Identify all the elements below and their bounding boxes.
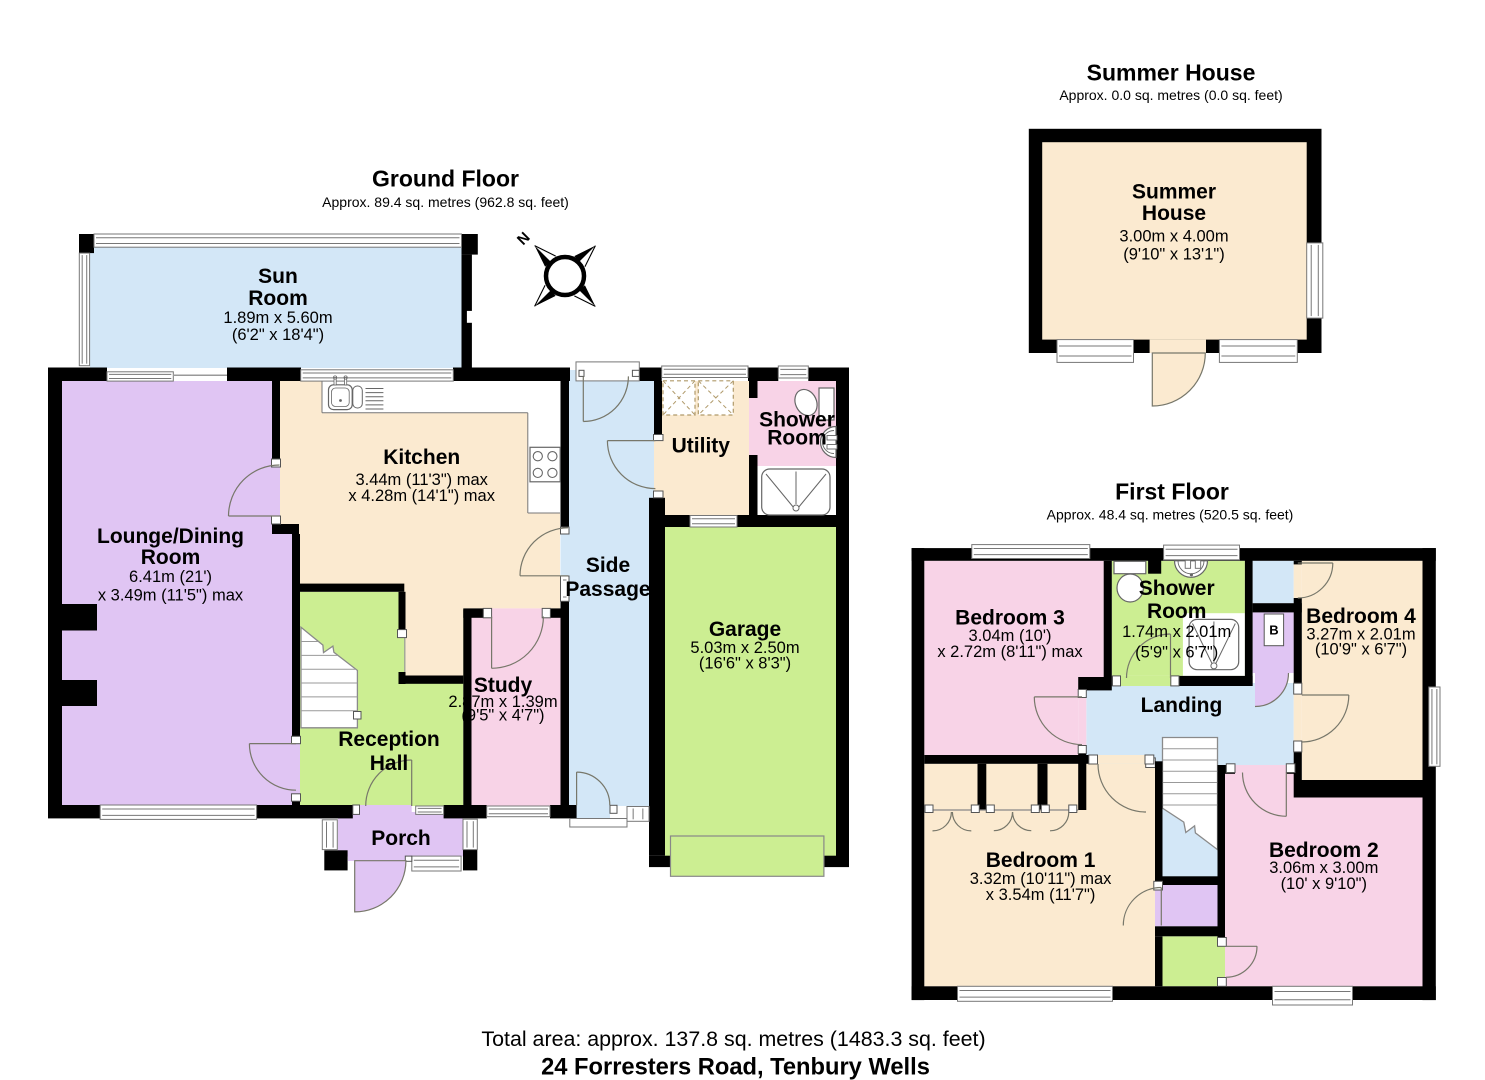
svg-text:Reception: Reception — [338, 728, 440, 751]
svg-text:Garage: Garage — [709, 618, 781, 641]
svg-text:Passage: Passage — [565, 578, 650, 601]
svg-text:(10'9" x 6'7"): (10'9" x 6'7") — [1315, 641, 1407, 659]
svg-text:1.89m x 5.60m: 1.89m x 5.60m — [223, 309, 332, 327]
svg-text:Side: Side — [586, 554, 630, 577]
svg-text:Landing: Landing — [1141, 694, 1223, 717]
svg-text:First Floor: First Floor — [1115, 479, 1229, 505]
svg-text:Utility: Utility — [672, 435, 731, 458]
svg-text:Approx. 48.4 sq. metres (520.5: Approx. 48.4 sq. metres (520.5 sq. feet) — [1047, 507, 1294, 523]
svg-text:Summer: Summer — [1132, 181, 1216, 204]
svg-text:Summer House: Summer House — [1087, 60, 1256, 86]
svg-text:Room: Room — [1147, 600, 1207, 623]
svg-text:B: B — [1269, 623, 1278, 638]
svg-text:(10' x 9'10"): (10' x 9'10") — [1281, 875, 1367, 893]
svg-text:(6'2" x 18'4"): (6'2" x 18'4") — [232, 326, 324, 344]
svg-text:(16'6" x 8'3"): (16'6" x 8'3") — [699, 655, 791, 673]
svg-text:Ground Floor: Ground Floor — [372, 166, 519, 192]
svg-text:1.74m x 2.01m: 1.74m x 2.01m — [1122, 623, 1231, 641]
svg-text:Room: Room — [141, 546, 201, 569]
svg-text:Porch: Porch — [371, 827, 431, 850]
svg-text:Bedroom 1: Bedroom 1 — [986, 849, 1096, 872]
svg-text:Total area: approx. 137.8 sq.: Total area: approx. 137.8 sq. metres (14… — [481, 1027, 985, 1051]
svg-text:24 Forresters Road, Tenbury We: 24 Forresters Road, Tenbury Wells — [541, 1055, 930, 1080]
svg-text:Sun: Sun — [258, 265, 298, 288]
svg-text:Room: Room — [767, 427, 827, 450]
svg-text:x 2.72m (8'11") max: x 2.72m (8'11") max — [937, 643, 1083, 661]
svg-text:3.00m x 4.00m: 3.00m x 4.00m — [1119, 228, 1228, 246]
svg-text:(5'9" x 6'7"): (5'9" x 6'7") — [1135, 644, 1218, 662]
svg-text:Lounge/Dining: Lounge/Dining — [97, 525, 244, 548]
svg-text:(9'10" x 13'1"): (9'10" x 13'1") — [1123, 246, 1224, 264]
svg-text:x 4.28m (14'1") max: x 4.28m (14'1") max — [348, 487, 495, 505]
svg-text:Approx. 0.0 sq. metres (0.0 sq: Approx. 0.0 sq. metres (0.0 sq. feet) — [1059, 87, 1282, 103]
svg-text:x 3.49m (11'5") max: x 3.49m (11'5") max — [98, 587, 244, 605]
svg-text:Room: Room — [248, 287, 308, 310]
svg-text:x 3.54m (11'7"): x 3.54m (11'7") — [986, 886, 1096, 904]
svg-text:6.41m (21'): 6.41m (21') — [129, 568, 212, 586]
svg-text:(9'5" x 4'7"): (9'5" x 4'7") — [461, 707, 544, 725]
svg-text:Hall: Hall — [370, 752, 409, 775]
svg-text:Shower: Shower — [1139, 577, 1215, 600]
svg-text:Kitchen: Kitchen — [383, 446, 460, 469]
svg-text:House: House — [1142, 202, 1206, 225]
svg-text:Approx. 89.4 sq. metres (962.8: Approx. 89.4 sq. metres (962.8 sq. feet) — [322, 194, 569, 210]
